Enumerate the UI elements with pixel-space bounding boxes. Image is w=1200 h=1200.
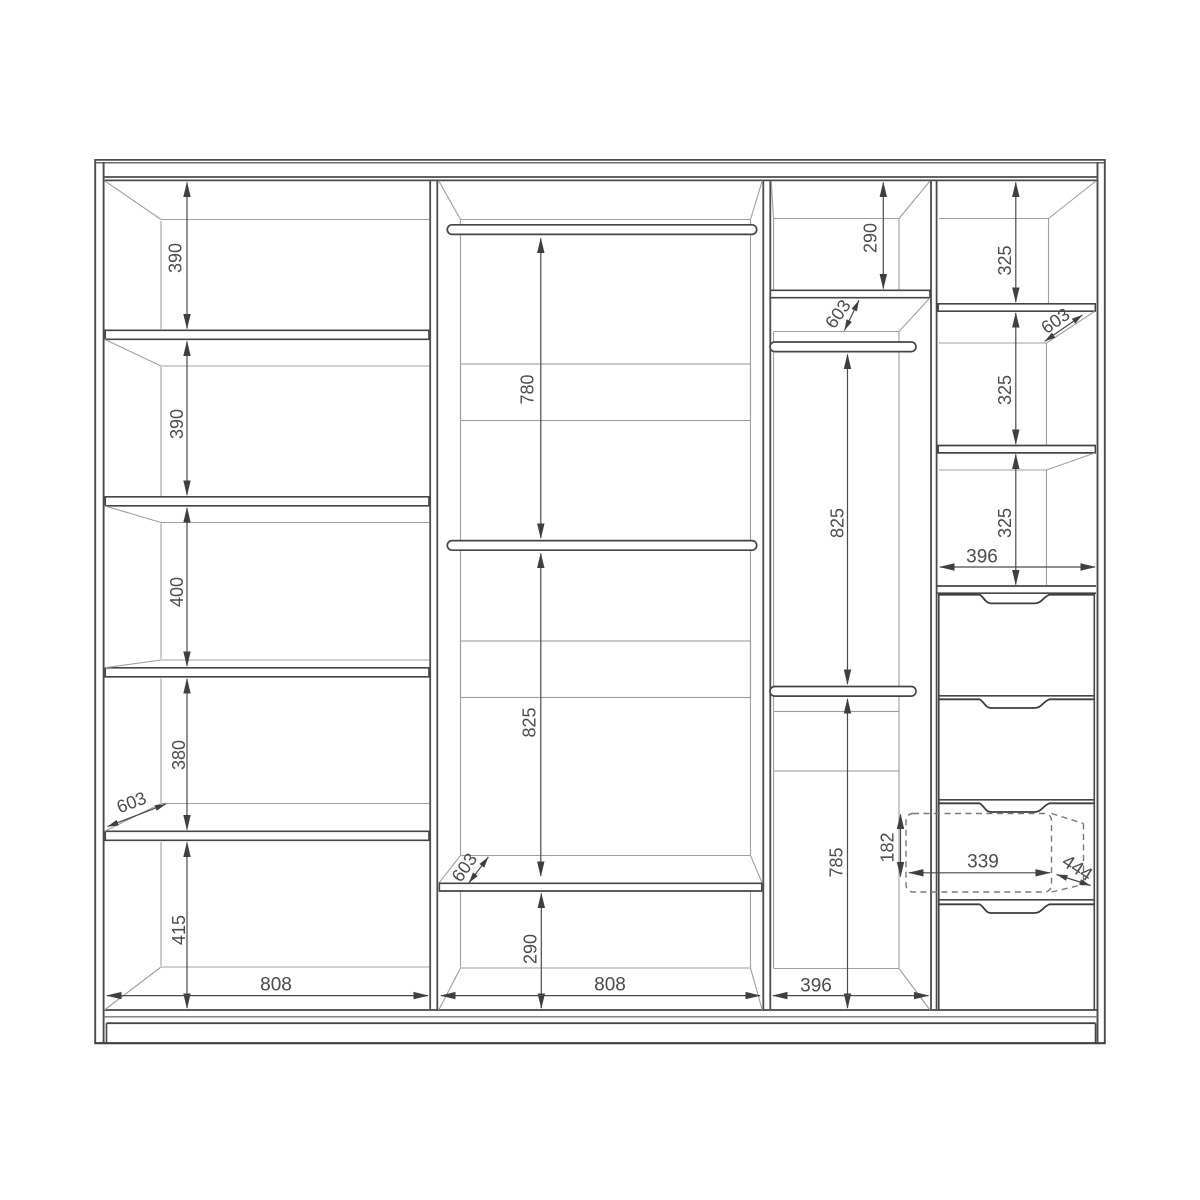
svg-text:390: 390 [167, 409, 187, 439]
svg-text:339: 339 [967, 852, 999, 873]
svg-text:390: 390 [166, 243, 186, 273]
svg-text:380: 380 [169, 740, 189, 770]
svg-text:825: 825 [520, 707, 540, 737]
svg-text:182: 182 [878, 832, 898, 862]
svg-text:290: 290 [521, 934, 541, 964]
svg-text:325: 325 [995, 508, 1015, 538]
svg-text:396: 396 [966, 547, 998, 568]
svg-text:396: 396 [800, 976, 832, 997]
svg-text:785: 785 [827, 847, 847, 877]
svg-text:415: 415 [169, 915, 189, 945]
svg-text:325: 325 [995, 375, 1015, 405]
svg-text:290: 290 [861, 223, 881, 253]
svg-text:808: 808 [260, 975, 292, 996]
svg-text:825: 825 [828, 508, 848, 538]
svg-text:808: 808 [594, 975, 626, 996]
svg-text:325: 325 [995, 245, 1015, 275]
svg-text:400: 400 [167, 577, 187, 607]
svg-text:780: 780 [518, 374, 538, 404]
